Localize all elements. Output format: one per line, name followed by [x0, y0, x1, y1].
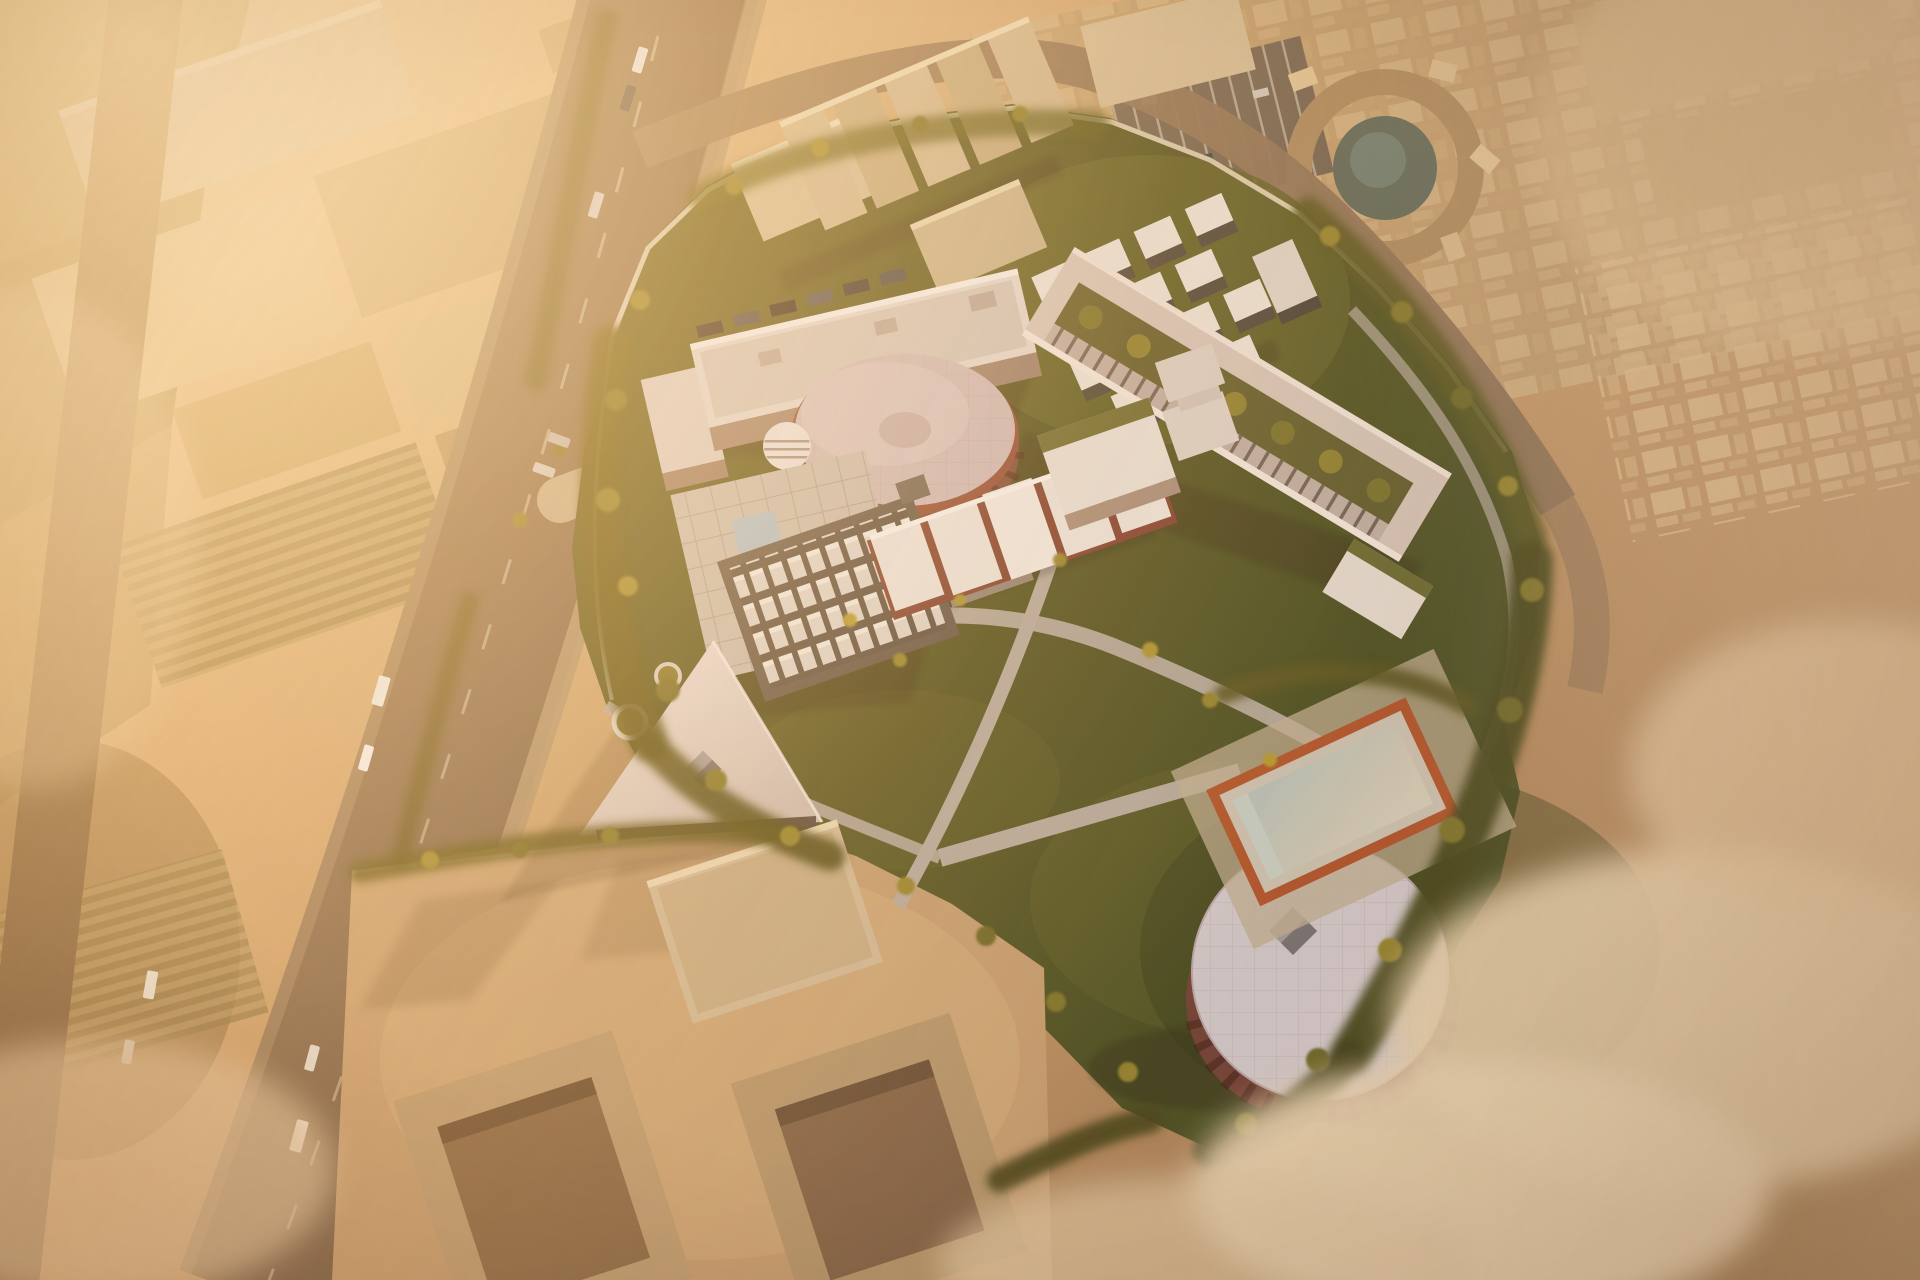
tree [421, 851, 439, 869]
tree [1142, 642, 1158, 658]
tree [1306, 1048, 1330, 1072]
tree [1053, 553, 1067, 567]
tree [1046, 992, 1066, 1012]
tree [605, 389, 627, 411]
tree [893, 653, 907, 667]
louver [763, 448, 811, 451]
tree [1520, 578, 1544, 602]
tree [954, 594, 966, 606]
tree [976, 926, 996, 946]
louver-tower [763, 422, 811, 470]
roof-center-ring [879, 412, 931, 448]
scene-canvas [0, 0, 1920, 1280]
tree [780, 826, 800, 846]
tree [897, 877, 915, 895]
tree [1320, 226, 1340, 246]
tree [596, 488, 620, 512]
tree [1378, 938, 1402, 962]
aerial-render-stage [0, 0, 1920, 1280]
tree [1497, 697, 1523, 723]
tree [656, 678, 680, 702]
tree [1202, 692, 1218, 708]
tree [1498, 476, 1518, 496]
tree [601, 827, 619, 845]
tree [705, 769, 727, 791]
tree [1451, 387, 1473, 409]
louver [763, 440, 811, 443]
tree [512, 512, 528, 528]
roof-highlight [801, 362, 969, 466]
tree [1263, 753, 1277, 767]
tree [1391, 301, 1413, 323]
tree [512, 842, 528, 858]
tree [618, 576, 638, 596]
tower-top [763, 422, 811, 470]
tree [811, 139, 829, 157]
tree [630, 290, 650, 310]
tree [843, 613, 857, 627]
tree [1439, 817, 1465, 843]
pond-highlight [1350, 132, 1406, 188]
tree [912, 116, 928, 132]
tree [1012, 106, 1028, 122]
tree [725, 177, 743, 195]
louver [763, 456, 811, 459]
tree [1118, 1062, 1138, 1082]
